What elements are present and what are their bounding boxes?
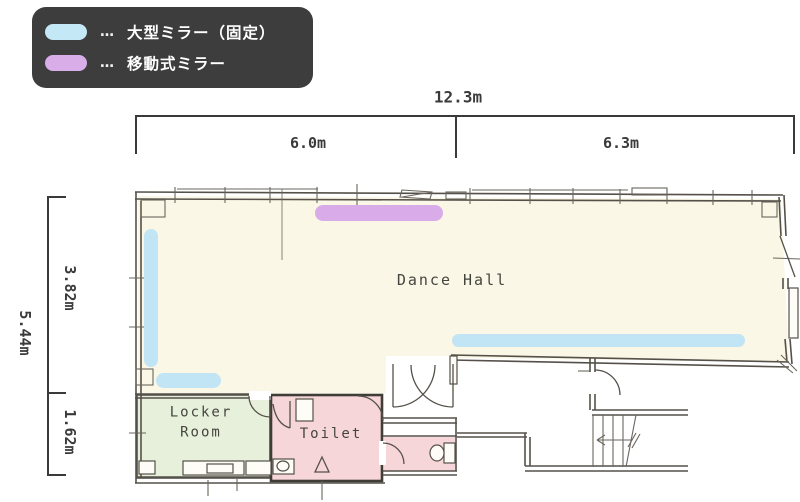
- legend-item-movable-mirror: … 移動式ミラー: [45, 52, 313, 74]
- dimension-height-upper: 3.82m: [61, 265, 79, 310]
- fixed-mirror-left: [144, 229, 158, 367]
- floor-plan-page: … 大型ミラー（固定） … 移動式ミラー 12.3m 6.0m 6.3m 3.8…: [0, 0, 800, 502]
- toilet-label: Toilet: [300, 426, 363, 442]
- movable-mirror-label: 移動式ミラー: [127, 52, 226, 74]
- dimension-width-right: 6.3m: [603, 134, 639, 152]
- legend-item-fixed-mirror: … 大型ミラー（固定）: [45, 21, 313, 43]
- dance-hall-label: Dance Hall: [397, 271, 507, 289]
- legend: … 大型ミラー（固定） … 移動式ミラー: [32, 7, 313, 88]
- fixed-mirror-swatch-icon: [45, 24, 87, 40]
- fixed-mirror-bottom-left: [156, 373, 221, 388]
- dimension-height-lower: 1.62m: [61, 409, 79, 454]
- locker-room-label: Locker Room: [170, 403, 233, 444]
- movable-mirror-top: [315, 205, 443, 221]
- fixed-mirror-label: 大型ミラー（固定）: [127, 21, 276, 43]
- fixed-mirror-bottom-right: [452, 334, 745, 347]
- dimension-total-width: 12.3m: [434, 88, 482, 107]
- stairs: [593, 415, 640, 467]
- hall-door-vestibule: [386, 356, 452, 408]
- dance-hall-area: [138, 196, 789, 393]
- legend-separator: …: [100, 25, 114, 39]
- movable-mirror-swatch-icon: [45, 55, 87, 71]
- locker-room-label-line2: Room: [170, 423, 233, 443]
- dimension-total-height: 5.44m: [16, 310, 34, 355]
- legend-separator: …: [100, 56, 114, 70]
- dimension-width-left: 6.0m: [290, 134, 326, 152]
- locker-room-label-line1: Locker: [170, 403, 233, 423]
